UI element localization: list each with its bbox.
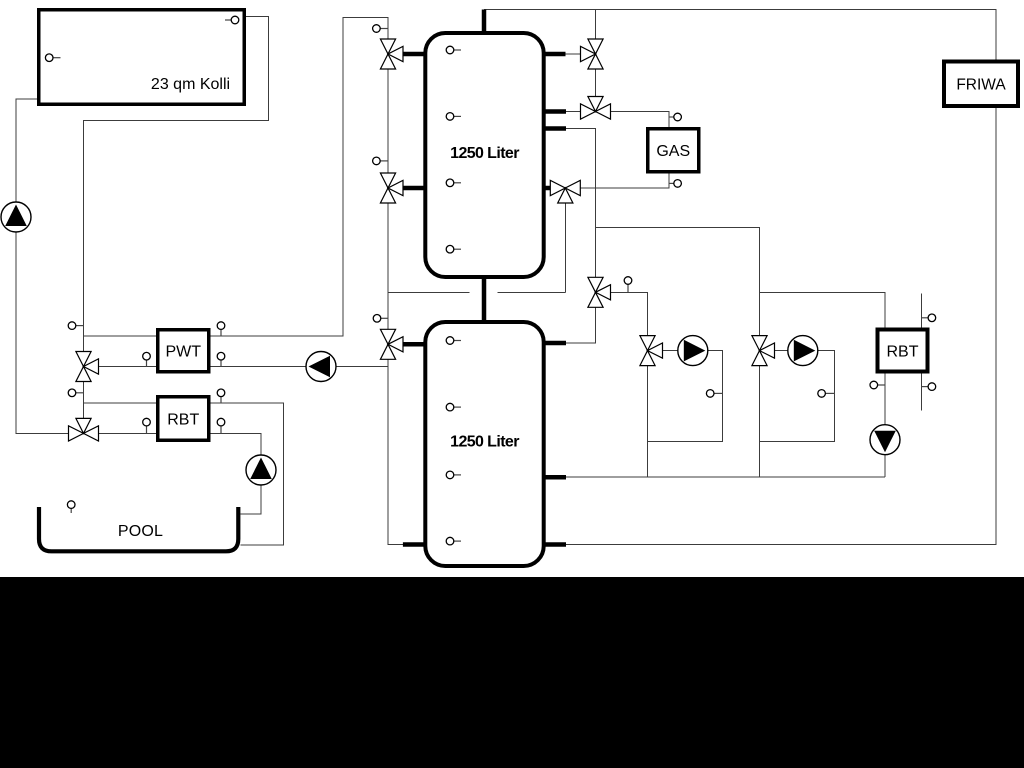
svg-text:RBT: RBT [167,411,199,428]
svg-text:23 qm Kolli: 23 qm Kolli [151,76,230,93]
svg-text:RBT: RBT [887,343,919,360]
svg-text:1250 Liter: 1250 Liter [450,145,519,162]
svg-text:PWT: PWT [165,344,201,361]
svg-text:GAS: GAS [656,143,690,160]
svg-text:POOL: POOL [118,523,163,540]
svg-text:FRIWA: FRIWA [956,76,1006,93]
svg-text:1250 Liter: 1250 Liter [450,433,519,450]
